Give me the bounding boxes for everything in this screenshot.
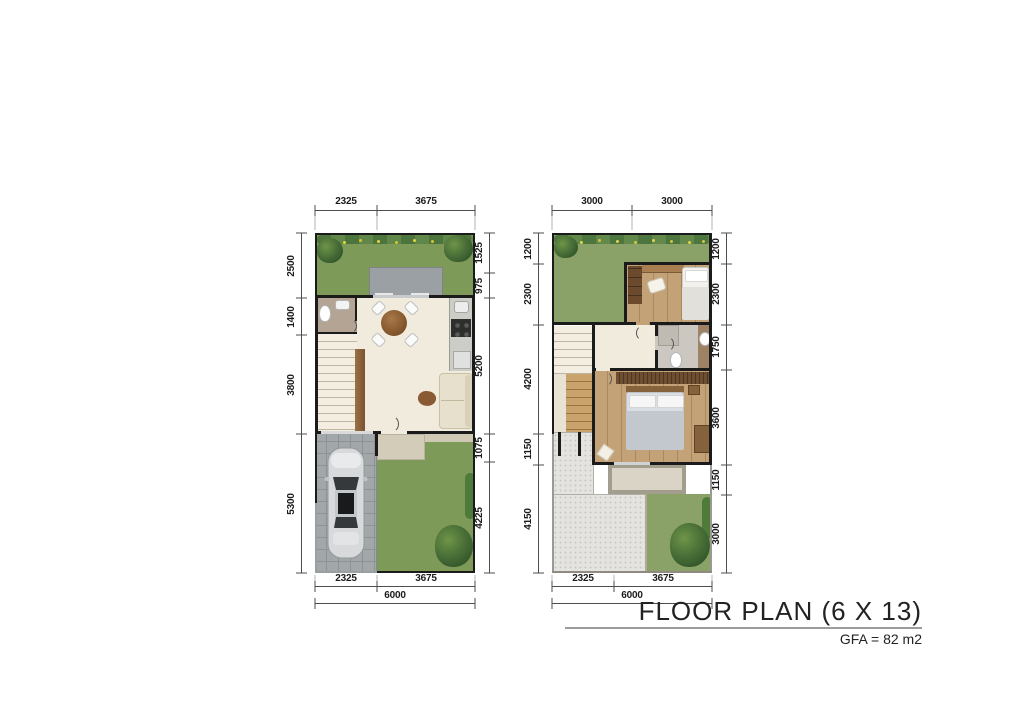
dim-label: 5200 (474, 346, 486, 386)
dim-label: 3675 (396, 196, 456, 208)
floor-plan-sheet: 2325 3675 2500 1400 3800 5300 1525 975 5… (0, 0, 1024, 723)
dim-label: 2325 (316, 573, 376, 585)
dim-label: 1750 (711, 327, 723, 367)
dim-label: 3800 (286, 365, 298, 405)
dim-label: 2325 (316, 196, 376, 208)
dim-label: 1075 (474, 428, 486, 468)
dim-label: 3000 (642, 196, 702, 208)
dim-label: 975 (474, 266, 486, 306)
page-title: FLOOR PLAN (6 X 13) (565, 597, 922, 625)
dim-label: 1150 (523, 429, 535, 469)
dim-label: 2325 (553, 573, 613, 585)
dim-label: 6000 (365, 590, 425, 602)
dim-label: 3600 (711, 398, 723, 438)
dim-label: 5300 (286, 484, 298, 524)
dim-label: 1200 (523, 229, 535, 269)
title-underline (565, 627, 922, 629)
dim-label: 4200 (523, 359, 535, 399)
dim-label: 4150 (523, 499, 535, 539)
dim-label: 1200 (711, 229, 723, 269)
dim-label: 2500 (286, 246, 298, 286)
dim-label: 1400 (286, 297, 298, 337)
dim-label: 2300 (523, 274, 535, 314)
dim-label: 3000 (562, 196, 622, 208)
dim-label: 1150 (711, 460, 723, 500)
gfa-note: GFA = 82 m2 (565, 631, 922, 647)
dim-label: 2300 (711, 274, 723, 314)
dim-label: 3000 (711, 514, 723, 554)
dim-label: 3675 (396, 573, 456, 585)
dim-label: 3675 (633, 573, 693, 585)
dim-label: 4225 (474, 498, 486, 538)
